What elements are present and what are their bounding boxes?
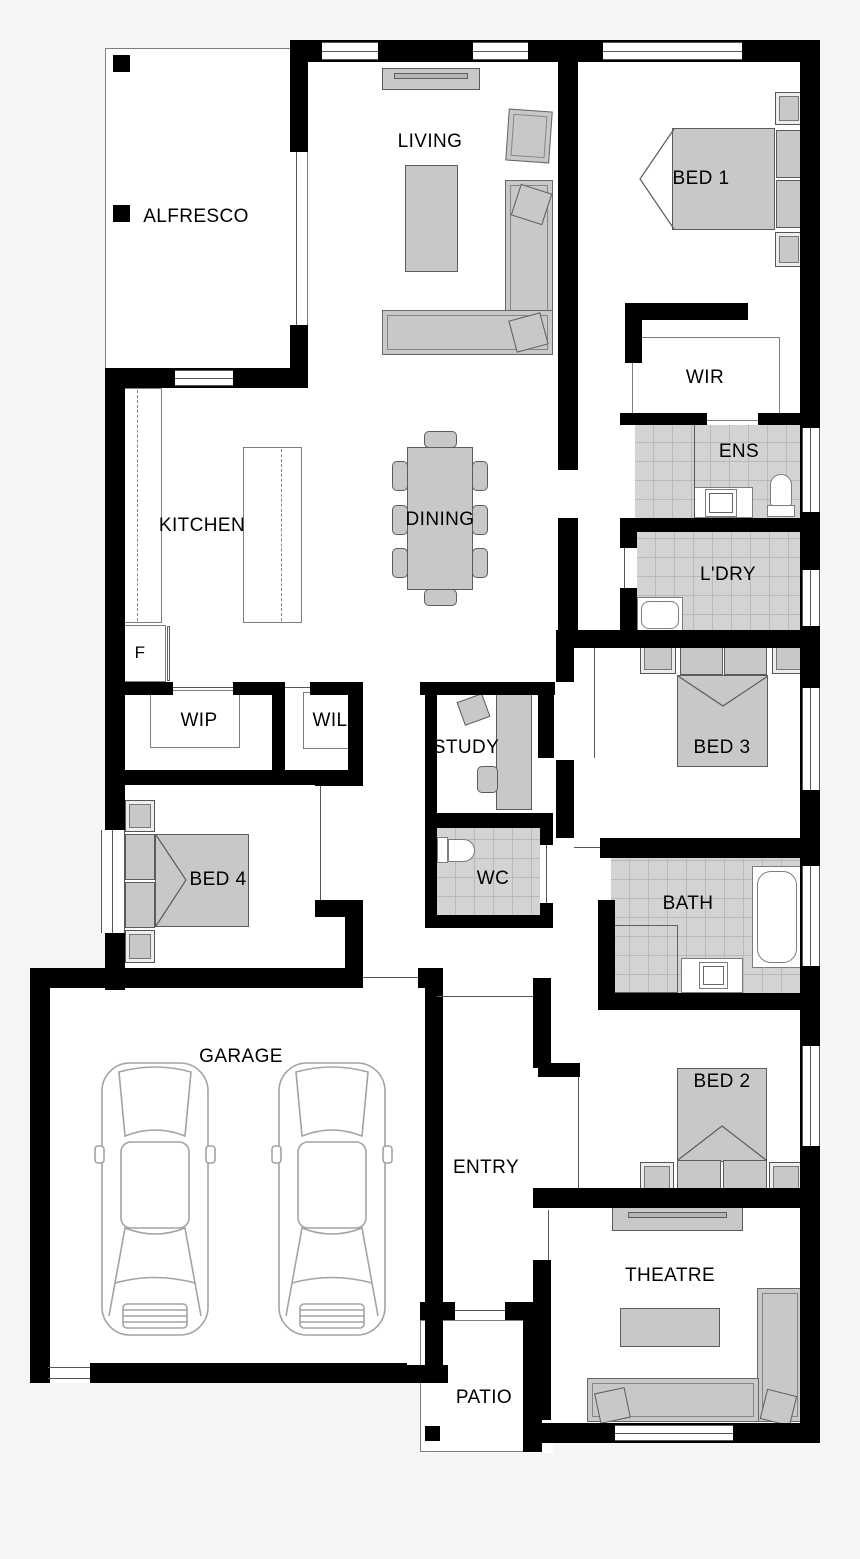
theatre-tv-unit bbox=[612, 1206, 743, 1231]
kitchen-bench-dashed-line bbox=[137, 390, 138, 621]
window bbox=[101, 830, 125, 933]
theatre-coffee-table bbox=[620, 1308, 720, 1347]
room-label-ldry: L'DRY bbox=[700, 564, 756, 586]
bed2-sheet-fold bbox=[678, 1120, 766, 1160]
kitchen-island bbox=[243, 447, 302, 623]
kitchen-island-dashed-line bbox=[281, 449, 282, 621]
wall bbox=[30, 968, 50, 1383]
wall bbox=[558, 518, 578, 633]
room-label-bed4: BED 4 bbox=[190, 869, 247, 891]
wall bbox=[540, 903, 553, 928]
wall bbox=[598, 900, 615, 993]
bath-tub-basin bbox=[757, 871, 797, 963]
theatre-tv bbox=[628, 1212, 727, 1218]
kitchen-bench bbox=[122, 388, 162, 623]
dining-chair bbox=[472, 461, 488, 491]
room-label-bed3: BED 3 bbox=[694, 737, 751, 759]
wall bbox=[122, 682, 173, 695]
room-label-wir: WIR bbox=[686, 367, 724, 389]
wall bbox=[625, 303, 642, 363]
ens-toilet-bowl bbox=[770, 474, 792, 506]
wall bbox=[598, 993, 820, 1010]
bed3-sheet-fold bbox=[678, 676, 768, 718]
room-label-theatre: THEATRE bbox=[625, 1265, 715, 1287]
ens-sink bbox=[705, 489, 737, 517]
ens-toilet-tank bbox=[767, 505, 795, 517]
wall bbox=[30, 1363, 48, 1383]
door-line bbox=[546, 845, 547, 903]
bed1-pillow bbox=[776, 130, 803, 178]
dining-chair bbox=[392, 461, 408, 491]
wall bbox=[620, 518, 637, 548]
room-label-study: STUDY bbox=[433, 737, 499, 759]
wall bbox=[425, 968, 443, 1383]
bed3-pillow bbox=[680, 645, 723, 675]
wall bbox=[407, 1365, 448, 1383]
room-label-ens: ENS bbox=[719, 441, 759, 463]
wall bbox=[505, 1302, 542, 1320]
bath-shower bbox=[611, 925, 678, 993]
room-label-bath: BATH bbox=[663, 893, 714, 915]
wall bbox=[420, 682, 555, 695]
wall bbox=[345, 917, 363, 968]
dining-chair bbox=[392, 548, 408, 578]
window bbox=[802, 866, 820, 966]
room-label-patio: PATIO bbox=[456, 1387, 512, 1409]
window bbox=[802, 688, 820, 790]
dining-chair bbox=[472, 548, 488, 578]
bed1-bedside-table bbox=[775, 92, 803, 125]
wall bbox=[425, 682, 437, 928]
wall bbox=[540, 813, 553, 845]
window bbox=[802, 428, 820, 512]
bed1-pillow bbox=[776, 180, 803, 228]
wall bbox=[315, 774, 363, 786]
wall bbox=[533, 978, 551, 1068]
dining-chair bbox=[424, 589, 457, 606]
wall bbox=[620, 413, 707, 425]
door-line bbox=[320, 786, 321, 900]
study-desk bbox=[496, 692, 532, 810]
living-coffee-table bbox=[405, 165, 458, 272]
window bbox=[322, 42, 378, 60]
wall bbox=[558, 62, 578, 470]
window bbox=[615, 1425, 733, 1441]
wall bbox=[315, 900, 363, 917]
car-icon bbox=[272, 1058, 392, 1343]
door-line bbox=[173, 687, 233, 688]
study-chair bbox=[477, 766, 498, 793]
bed4-pillow bbox=[125, 882, 155, 928]
room-label-wc: WC bbox=[477, 868, 509, 890]
wall bbox=[600, 838, 810, 858]
bed3-pillow bbox=[724, 645, 767, 675]
post bbox=[425, 1426, 440, 1441]
door-line bbox=[285, 687, 310, 688]
room-label-kitchen: KITCHEN bbox=[159, 515, 245, 537]
door-line bbox=[48, 1367, 90, 1368]
living-armchair bbox=[505, 109, 553, 164]
room-label-entry: ENTRY bbox=[453, 1157, 519, 1179]
living-tv bbox=[394, 73, 468, 79]
room-label-bed1: BED 1 bbox=[673, 168, 730, 190]
wall bbox=[620, 588, 637, 635]
window bbox=[802, 570, 820, 626]
bed1-sheet-fold bbox=[630, 129, 674, 229]
window bbox=[473, 42, 528, 60]
room-label-fridge: F bbox=[135, 643, 146, 663]
window bbox=[603, 42, 742, 60]
door-line bbox=[578, 1077, 579, 1188]
door-line bbox=[363, 977, 418, 978]
wall bbox=[556, 630, 810, 648]
door-line bbox=[548, 1210, 549, 1260]
door-line bbox=[296, 152, 297, 325]
wall bbox=[30, 968, 363, 988]
room-label-dining: DINING bbox=[406, 509, 475, 531]
wall bbox=[420, 1302, 455, 1320]
window bbox=[175, 370, 233, 386]
wall bbox=[620, 518, 810, 532]
wc-toilet-bowl bbox=[448, 839, 475, 862]
fridge-door-line bbox=[167, 626, 170, 681]
wall bbox=[90, 1363, 407, 1383]
bed4-pillow bbox=[125, 834, 155, 880]
window bbox=[802, 1046, 820, 1146]
ldry-tub-basin bbox=[641, 601, 679, 629]
living-tv-unit bbox=[382, 68, 480, 90]
wall bbox=[625, 303, 748, 320]
wall bbox=[533, 1188, 810, 1208]
wall bbox=[538, 1063, 580, 1077]
bath-sink bbox=[699, 962, 728, 989]
door-line bbox=[574, 847, 600, 848]
door-line bbox=[455, 1310, 505, 1311]
wall bbox=[290, 45, 308, 152]
door-line bbox=[624, 548, 625, 588]
door-line bbox=[437, 996, 533, 997]
wall bbox=[758, 413, 807, 425]
door-line bbox=[694, 425, 695, 518]
floor-plan: ALFRESCO LIVING BED 1 WIR ENS KITCHEN DI… bbox=[0, 0, 860, 1559]
room-label-living: LIVING bbox=[398, 131, 463, 153]
wall bbox=[556, 760, 574, 838]
wall bbox=[538, 682, 554, 758]
bed1-bedside-table bbox=[775, 232, 803, 267]
door-line bbox=[48, 1378, 90, 1379]
dining-chair bbox=[424, 431, 457, 448]
bed4-bedside-table bbox=[125, 930, 155, 963]
post bbox=[113, 55, 130, 72]
post bbox=[113, 205, 130, 222]
car-icon bbox=[95, 1058, 215, 1343]
theatre-sofa-cushion bbox=[594, 1387, 631, 1424]
bed4-bedside-table bbox=[125, 800, 155, 832]
room-label-alfresco: ALFRESCO bbox=[143, 206, 249, 228]
wall bbox=[348, 682, 363, 774]
wall bbox=[425, 915, 553, 928]
room-label-garage: GARAGE bbox=[199, 1046, 283, 1068]
room-label-bed2: BED 2 bbox=[694, 1071, 751, 1093]
wc-toilet-tank bbox=[437, 837, 448, 863]
room-label-wil: WIL bbox=[313, 710, 348, 732]
door-line bbox=[594, 648, 595, 758]
wall bbox=[425, 813, 553, 828]
room-label-wip: WIP bbox=[180, 710, 217, 732]
wall bbox=[523, 1320, 542, 1452]
